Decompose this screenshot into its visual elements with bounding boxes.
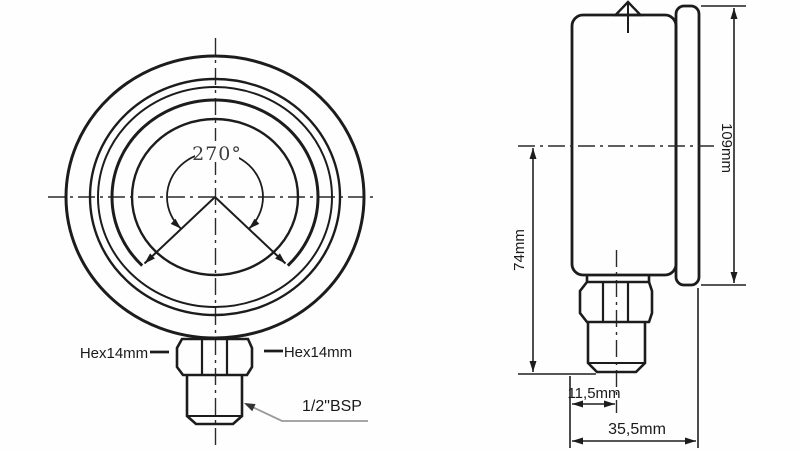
case-body-side <box>572 15 676 275</box>
bsp-leader-arrowhead <box>244 403 256 411</box>
scale-end-radial-left <box>145 197 216 264</box>
drawing-canvas: 270° Hex14mm Hex14mm 1/2"BSP <box>0 0 800 450</box>
front-view: 270° Hex14mm Hex14mm 1/2"BSP <box>48 38 378 448</box>
dim-35-5-label: 35,5mm <box>608 421 666 438</box>
angle-270-label: 270° <box>192 143 242 165</box>
hex-nut-front <box>177 339 252 375</box>
bsp-thread-label: 1/2"BSP <box>302 398 362 415</box>
hex-nut-side-facets <box>603 282 628 322</box>
hex-left-label: Hex14mm <box>80 345 148 362</box>
dim-11-5-label: 11,5mm <box>567 385 620 402</box>
scale-end-radial-right <box>215 197 286 264</box>
dim-109-label: 109mm <box>718 123 735 173</box>
side-view: 109mm 74mm 11,5mm 35,5mm <box>511 2 746 448</box>
dim-74-label: 74mm <box>511 229 528 271</box>
hex-right-label: Hex14mm <box>284 344 352 361</box>
hex-nut-front-facets <box>202 340 227 374</box>
gauge-technical-drawing: 270° Hex14mm Hex14mm 1/2"BSP <box>0 0 800 450</box>
